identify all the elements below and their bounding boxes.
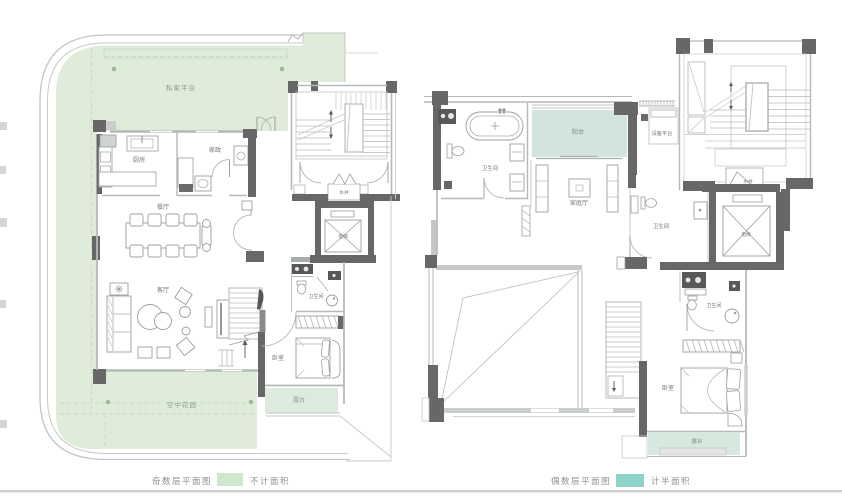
svg-text:偶数层平面图: 偶数层平面图 <box>551 476 611 486</box>
svg-text:卫生间: 卫生间 <box>308 293 323 300</box>
svg-text:奇数层平面图: 奇数层平面图 <box>152 476 212 486</box>
svg-text:水井: 水井 <box>339 189 349 196</box>
svg-text:设备平台: 设备平台 <box>652 129 673 137</box>
svg-text:阳台: 阳台 <box>572 128 584 136</box>
svg-text:电梯: 电梯 <box>741 231 751 238</box>
svg-text:露台: 露台 <box>293 396 305 404</box>
svg-text:家庭厅: 家庭厅 <box>570 199 588 207</box>
svg-text:厨房: 厨房 <box>133 156 145 164</box>
svg-text:计半面积: 计半面积 <box>651 476 691 486</box>
svg-text:空中花园: 空中花园 <box>167 400 197 409</box>
svg-text:不计面积: 不计面积 <box>250 476 290 486</box>
svg-text:餐厅: 餐厅 <box>157 203 169 211</box>
svg-text:露台: 露台 <box>692 437 703 445</box>
svg-text:电梯: 电梯 <box>338 233 348 240</box>
svg-text:卫生间: 卫生间 <box>482 164 498 172</box>
svg-text:卫生间: 卫生间 <box>653 222 669 230</box>
svg-text:水井: 水井 <box>743 178 753 185</box>
svg-text:卫生间: 卫生间 <box>706 302 721 309</box>
svg-text:卧室: 卧室 <box>662 384 674 392</box>
svg-text:私家平台: 私家平台 <box>166 83 196 92</box>
svg-text:客厅: 客厅 <box>157 286 169 294</box>
svg-text:卧室: 卧室 <box>272 354 284 362</box>
svg-text:家政: 家政 <box>209 146 221 154</box>
